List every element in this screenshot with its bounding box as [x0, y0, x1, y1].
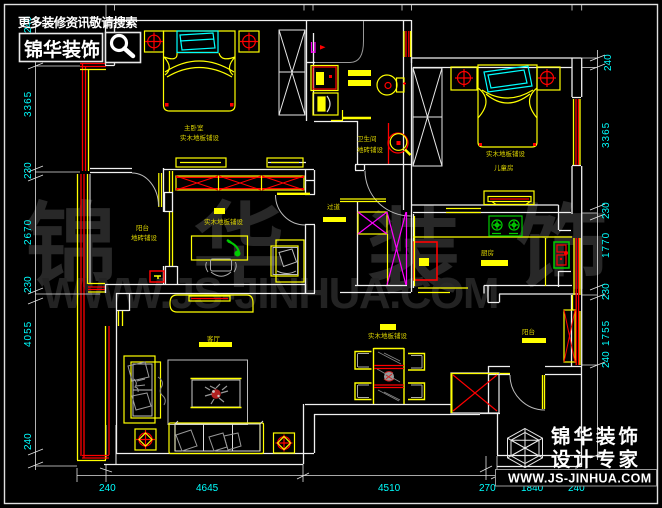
svg-text:实木地板铺设: 实木地板铺设 — [204, 217, 244, 226]
svg-text:230: 230 — [601, 283, 612, 300]
svg-text:2670: 2670 — [23, 219, 34, 245]
svg-text:240: 240 — [603, 54, 614, 71]
svg-text:阳台: 阳台 — [136, 223, 149, 232]
svg-text:实木地板铺设: 实木地板铺设 — [486, 149, 526, 158]
svg-text:4055: 4055 — [23, 321, 34, 347]
svg-text:实木地板铺设: 实木地板铺设 — [368, 331, 408, 340]
svg-text:230: 230 — [601, 202, 612, 219]
svg-text:更多装修资讯敬请搜索: 更多装修资讯敬请搜索 — [18, 15, 138, 30]
svg-text:230: 230 — [23, 162, 34, 179]
svg-text:230: 230 — [23, 276, 34, 293]
svg-text:3365: 3365 — [23, 91, 34, 117]
svg-text:过道: 过道 — [327, 202, 341, 211]
svg-text:3365: 3365 — [601, 122, 612, 148]
svg-text:卫生间: 卫生间 — [357, 134, 377, 143]
svg-text:地砖铺设: 地砖铺设 — [131, 233, 158, 242]
svg-text:主卧室: 主卧室 — [184, 123, 204, 132]
svg-text:阳台: 阳台 — [522, 327, 535, 336]
svg-text:WWW.JS-JINHUA.COM: WWW.JS-JINHUA.COM — [508, 472, 652, 486]
svg-text:设计专家: 设计专家 — [551, 448, 641, 471]
svg-text:锦华装饰: 锦华装饰 — [24, 38, 100, 61]
svg-text:240: 240 — [23, 433, 34, 450]
svg-text:客厅: 客厅 — [207, 334, 221, 343]
svg-text:4645: 4645 — [196, 483, 219, 494]
svg-text:4510: 4510 — [378, 483, 401, 494]
svg-text:270: 270 — [479, 483, 496, 494]
svg-text:1770: 1770 — [601, 232, 612, 258]
svg-text:1755: 1755 — [601, 320, 612, 346]
svg-text:240: 240 — [99, 483, 116, 494]
svg-text:240: 240 — [601, 351, 612, 368]
svg-text:锦华装饰: 锦华装饰 — [551, 425, 641, 448]
svg-text:儿童房: 儿童房 — [494, 163, 514, 172]
svg-text:实木地板铺设: 实木地板铺设 — [180, 133, 220, 142]
svg-text:地砖铺设: 地砖铺设 — [357, 145, 384, 154]
svg-text:厨房: 厨房 — [481, 248, 494, 257]
